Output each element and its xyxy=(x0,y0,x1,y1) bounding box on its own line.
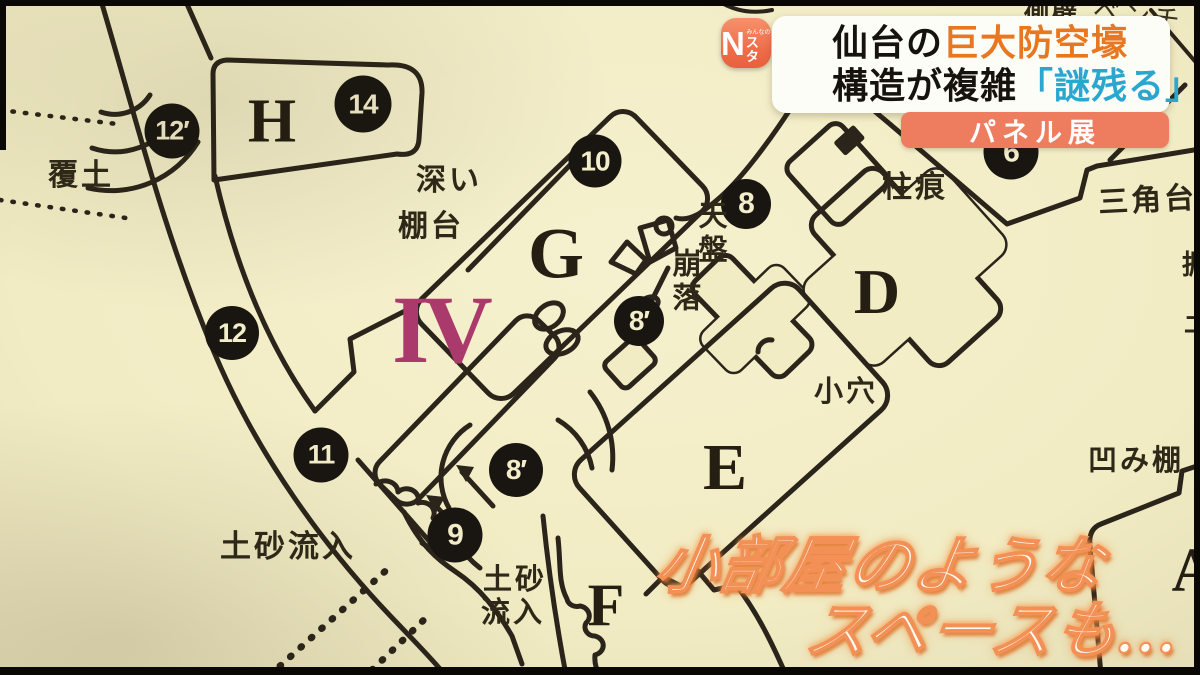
corridor-top-stub xyxy=(187,4,211,58)
marker-14: 14 xyxy=(335,76,392,133)
label-koana: 小穴 xyxy=(814,368,878,410)
marker-10: 10 xyxy=(569,135,622,188)
n-sta-logo: N みんなの スタ xyxy=(721,18,771,68)
marker-9: 9 xyxy=(428,508,483,563)
ceiling-rubble xyxy=(611,242,646,274)
dotted-line-left xyxy=(0,200,133,219)
dotted-line-bottom xyxy=(372,613,431,670)
marker-8-prime-lower: 8′ xyxy=(489,443,543,497)
dotted-line-bottom xyxy=(280,566,391,666)
room-label-d: D xyxy=(854,255,900,329)
cross-room xyxy=(688,251,816,381)
label-houraku: 崩落 xyxy=(663,248,705,316)
label-fukudo: 覆土 xyxy=(48,150,114,194)
marker-12: 12 xyxy=(205,306,259,360)
headline-line-1: 仙台の巨大防空壕 xyxy=(832,25,1128,61)
label-hekomidana: 凹み棚 xyxy=(1088,437,1184,479)
logo-sub: スタ xyxy=(746,36,771,63)
label-ryunyu: 流入 xyxy=(481,589,545,631)
frame-edge-left xyxy=(0,0,6,150)
label-tanadai: 棚台 xyxy=(398,201,464,245)
ceiling-rubble xyxy=(656,218,672,234)
headline-line-2: 構造が複雑「謎残る」 xyxy=(832,68,1200,104)
frame-edge-top xyxy=(0,0,1200,6)
collapse-arc xyxy=(558,420,592,468)
marker-8-prime-upper: 8′ xyxy=(614,296,664,346)
marker-12-prime: 12′ xyxy=(145,104,200,159)
headline-box: 仙台の巨大防空壕 構造が複雑「謎残る」 xyxy=(772,16,1170,113)
headline-line1-black: 仙台の xyxy=(832,22,943,63)
room-label-e: E xyxy=(703,430,747,506)
panel-exhibition-badge: パネル展 xyxy=(901,112,1169,148)
room-label-f: F xyxy=(588,572,625,641)
marker-11: 11 xyxy=(294,428,349,483)
room-label-h: H xyxy=(248,87,296,158)
room-label-g: G xyxy=(528,213,584,296)
broadcast-frame: IV H G D E F A 12′ 14 10 8 8′ 12 11 8′ 9… xyxy=(0,0,1200,675)
label-sankakudai: 三角台 xyxy=(1097,172,1198,221)
caption-line-2: スペースも… xyxy=(800,580,1192,670)
label-dosha-ryunyu-1: 土砂流入 xyxy=(220,521,356,566)
corridor-right-wall-upper xyxy=(215,176,315,411)
label-fukai: 深い xyxy=(416,155,482,199)
headline-line2-black: 構造が複雑 xyxy=(832,65,1017,106)
label-chuukon: 柱痕 xyxy=(882,162,948,206)
headline-line1-orange: 巨大防空壕 xyxy=(943,22,1128,63)
room-h-outline xyxy=(213,60,422,180)
soil-arc xyxy=(101,95,150,114)
headline-line2-blue: 「謎残る」 xyxy=(1017,65,1200,106)
logo-n: N xyxy=(721,27,745,60)
door-mark xyxy=(837,128,862,152)
section-numeral-iv: IV xyxy=(392,282,487,378)
